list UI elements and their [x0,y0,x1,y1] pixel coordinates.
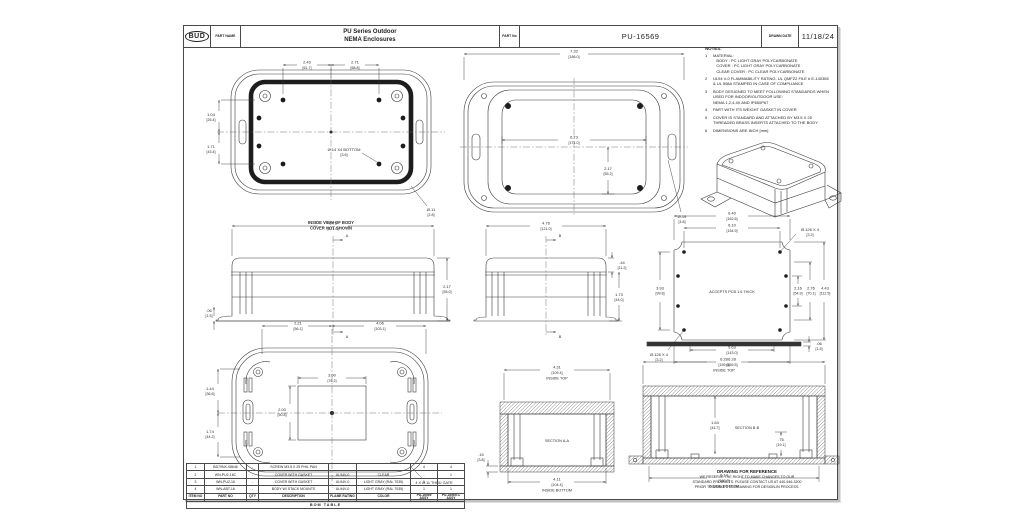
bom-cell: COVER WITH GASKET [259,471,329,478]
dim-label: .44 [619,260,625,265]
dim-label: .75 [778,437,784,442]
view-end-elevation: 4.76 [121.0] .44 [11.2] 1.73 [44.0] B B [464,216,629,341]
bom-cell: 1 [187,464,205,471]
bom-cell: BODY W/ STACK MOUNTS [259,486,329,493]
bom-cell: - [247,478,259,485]
bom-cell: UL94V-0 [329,478,357,485]
table-row: 1 BD79NX-08646 - SCREW M3.5 X 25 PHIL PA… [187,464,465,471]
logo-cell: BUD [184,26,211,47]
table-row: 4 WN-ABT-16 - BODY W/ STACK MOUNTS UL94V… [187,486,465,493]
dim-label: [56.1] [294,327,303,331]
dim-label: [186.0] [569,55,580,59]
section-letter: A [346,234,349,238]
dim-label: 2.43 [303,60,312,65]
bom-cell: 3 [187,478,205,485]
dim-caption: INSIDE TOP [546,377,568,381]
section-letter: B [559,234,562,238]
bom-cell: 1 [438,471,465,478]
dim-label: [26.4] [207,118,216,122]
note-text: PART WITH ITS WEIGHT GASKET IN COVER [713,107,797,112]
part-number: PU-16569 [622,32,660,41]
note-number: 1 [705,53,713,74]
dim-label: [3.8] [478,458,485,462]
bom-cell: 1 [411,486,438,493]
bom-header: PU-16569-C ASSY [438,493,465,501]
bom-cell: - [411,471,438,478]
dim-label: [44.2] [206,435,215,439]
note-number: 2 [705,76,713,86]
reference-text: PRIOR TO USING THIS DRAWING FOR DESIGN-I… [656,485,838,490]
dim-label: [36.6] [206,392,215,396]
dim-caption: INSIDE TOP [713,369,735,373]
note-text: COVER IS STANDARD AND ATTACHED BY M3.5 X… [713,115,818,125]
notes-title: NOTES: [705,46,838,51]
dim-label: [11.2] [618,266,627,270]
date-label: DRAWN DATE [762,26,799,47]
bom-header: PART NO [205,493,247,501]
pcb-note: ACCEPTS PCB 1.6 THICK [709,290,755,294]
dim-label: .06 [206,308,212,313]
dim-label: [171.0] [328,227,339,231]
dim-label: 2.17 [443,284,452,289]
bom-cell: - [247,464,259,471]
bom-title: BOM TABLE [187,501,465,508]
note-number: 6 [705,128,713,133]
bom-header: FLAME RATING [329,493,357,501]
dim-label: [112.5] [820,292,831,296]
dim-label: 2.71 [351,60,360,65]
bottom-view-geometry [232,348,428,476]
bom-cell: UL94V-0 [329,486,357,493]
callout-label: Ø.126 X 4 [801,227,820,232]
bom-cell: BD79NX-08646 [205,464,247,471]
notes-block: NOTES: 1MATERIAL: BODY : PC LIGHT GRAY P… [705,46,838,135]
reference-title: DRAWING FOR REFERENCE [656,469,838,474]
reference-block: DRAWING FOR REFERENCE WE RESERVE THE RIG… [656,469,838,490]
bom-cell [357,464,411,471]
bom-cell: 2 [187,471,205,478]
view-inside-body: 2.43 [61.7] 2.71 [68.8] 1.04 [26.4] 1.71… [199,56,464,236]
dim-label: 2.00 [278,407,287,412]
drawn-date: 11/18/24 [802,32,835,41]
dim-label: [103.1] [375,327,386,331]
bom-cell: WN-PU2-16 [205,478,247,485]
bom-cell: LIGHT GRAY (RAL 7035) [357,486,411,493]
note-text: UL94 V-0 FLAMMABILITY RATING. UL QMFZ2 F… [713,76,829,86]
dim-label: 6.10 [728,223,737,228]
dim-label: .06 [816,341,822,346]
dim-label: 1.44 [206,386,215,391]
dim-label: 6.73 [329,221,338,226]
dim-label: [19.1] [777,443,786,447]
bom-cell: CLEAR [357,471,411,478]
bom-cell: 1 [411,478,438,485]
dim-label: [159.6] [719,363,730,367]
note-text: BODY DESIGNED TO MEET FOLLOWING STANDARD… [713,89,829,105]
dim-label: [162.6] [727,217,738,221]
bom-cell: 4 [438,464,465,471]
dim-label: [109.4] [552,371,563,375]
table-row: 3 WN-PU2-16 - COVER WITH GASKET UL94V-0 … [187,478,465,485]
section-label: SECTION A-A [545,439,570,443]
dim-label: [54.9] [794,292,803,296]
dim-label: 4.06 [376,321,385,326]
bom-header: DESCRIPTION [259,493,329,501]
bom-cell: WN-ABT-16 [205,486,247,493]
dim-label: [99.8] [656,292,665,296]
table-row: 2 WN-PU2-16C - COVER WITH GASKET UL94V-0… [187,471,465,478]
dim-label: [43.4] [207,150,216,154]
section-bb-geometry [629,342,839,464]
drawing-sheet: BUD PART NAME PU Series Outdoor NEMA Enc… [183,25,838,500]
callout-label: [3.6] [341,153,348,157]
bom-cell: 4 [411,464,438,471]
dim-label: 6.73 [570,135,579,140]
dim-label: [41.7] [711,426,720,430]
dim-label: [121.0] [541,227,552,231]
table-title-row: BOM TABLE [187,501,465,508]
dim-label: 6.28 [720,357,729,362]
outside-top-centerlines [460,78,688,216]
dim-label: 2.17 [604,166,613,171]
dim-label: [1.5] [816,347,823,351]
note-text: MATERIAL: BODY : PC LIGHT GRAY POLYCARBO… [713,53,804,74]
dim-label: 1.71 [207,144,216,149]
bom-cell: SCREW M3.5 X 25 PHIL PAN [259,464,329,471]
drawing-canvas: BUD PART NAME PU Series Outdoor NEMA Enc… [0,0,1024,527]
bom-header: COLOR [357,493,411,501]
dim-label: 3.93 [656,286,665,291]
dim-label: 2.76 [807,286,816,291]
callout-label: Ø.11 [427,207,436,212]
dim-label: [68.8] [351,66,360,70]
bom-cell: 4 [187,486,205,493]
end-elevation-dimlines [486,226,622,332]
bom-header: ITEM NO [187,493,205,501]
dim-label: 1.04 [207,112,216,117]
note-number: 4 [705,107,713,112]
bom-cell: - [247,471,259,478]
dim-label: [171.0] [569,141,580,145]
bom-cell: - [247,486,259,493]
dim-label: 1.73 [615,292,624,297]
dim-label: 1.74 [206,429,215,434]
bom-cell: WN-PU2-16C [205,471,247,478]
bom-cell: LIGHT GRAY (RAL 7035) [357,478,411,485]
bom-cell: 1 [438,486,465,493]
dim-label: [104.4] [552,483,563,487]
dim-label: [44.0] [615,298,624,302]
note-number: 3 [705,89,713,105]
dim-label: 7.32 [570,49,579,54]
dim-label: [154.9] [727,229,738,233]
note-number: 5 [705,115,713,125]
bom-cell [329,464,357,471]
section-letter: B [559,335,562,339]
dim-label: 6.40 [728,211,737,216]
bom-header: PU-16569 ASSY [411,493,438,501]
view-section-aa: 4.31 [109.4] INSIDE TOP SECTION A-A 4.11… [474,356,644,498]
section-aa-geometry [500,402,614,472]
bottom-view-dimlines [218,326,426,478]
dim-label: 3.00 [328,373,337,378]
part-name-label: PART NAME [211,26,241,47]
callout-label: [3.2] [807,233,814,237]
dim-label: 2.16 [794,286,803,291]
dim-label: 4.11 [553,477,561,482]
section-label: SECTION B-B [735,426,760,430]
dim-label: [50.8] [278,413,287,417]
bud-logo: BUD [185,31,210,42]
dim-label: .15 [478,452,484,457]
dim-label: 4.43 [821,286,830,291]
bom-cell: - [438,478,465,485]
dim-caption: INSIDE BOTTOM [542,489,572,493]
dim-label: [70.1] [807,292,816,296]
dim-label: 2.21 [294,321,303,326]
dim-label: 4.31 [553,365,562,370]
table-header-row: ITEM NO PART NO QTY DESCRIPTION FLAME RA… [187,493,465,501]
callout-label: Ø.14 X4 BOTTOM [328,147,361,152]
dim-label: [55.2] [604,172,613,176]
date-cell: 11/18/24 [799,26,837,47]
dim-label: [76.2] [328,379,337,383]
bom-header: QTY [247,493,259,501]
dim-label: 4.76 [542,221,551,226]
bom-cell: COVER WITH GASKET [259,478,329,485]
view-outside-top: 7.32 [186.0] 6.73 [171.0] 2.17 [55.2] Ø.… [456,44,691,229]
dim-label: [61.7] [303,66,312,70]
dim-label: 1.64 [711,420,720,425]
dim-label: [55.0] [443,290,452,294]
note-text: DIMENSIONS ARE INCH [mm] [713,128,768,133]
bom-table: 1 BD79NX-08646 - SCREW M3.5 X 25 PHIL PA… [186,463,464,509]
bom-cell: UL94V-0 [329,471,357,478]
drawing-title: PU Series Outdoor NEMA Enclosures [343,29,396,44]
